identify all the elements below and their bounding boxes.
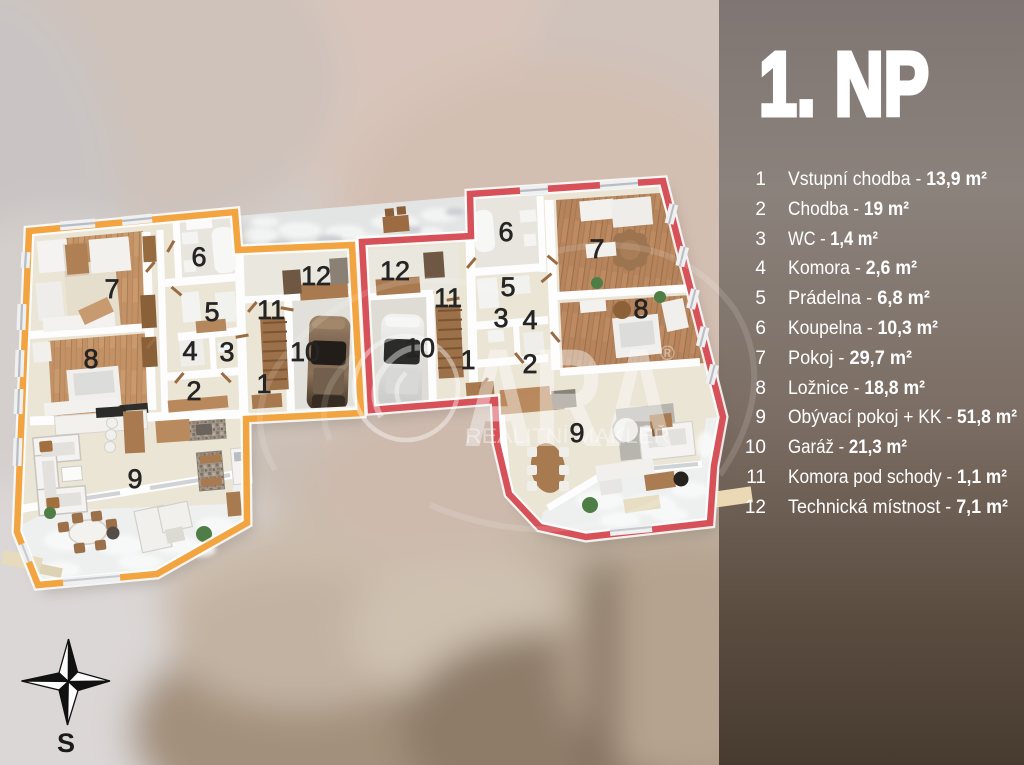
svg-text:S: S [57, 728, 75, 758]
svg-text:6: 6 [755, 318, 766, 339]
svg-text:8: 8 [633, 294, 648, 324]
svg-text:12: 12 [745, 497, 766, 518]
svg-text:10: 10 [290, 337, 320, 367]
svg-text:WC - 1,4 m²: WC - 1,4 m² [788, 229, 878, 250]
svg-text:5: 5 [755, 288, 766, 309]
svg-text:3: 3 [493, 303, 508, 333]
svg-text:Pokoj - 29,7 m²: Pokoj - 29,7 m² [788, 348, 912, 369]
svg-text:2: 2 [186, 376, 201, 406]
svg-text:Ložnice - 18,8 m²: Ložnice - 18,8 m² [788, 378, 925, 399]
svg-text:1: 1 [256, 369, 271, 399]
svg-text:6: 6 [498, 217, 513, 247]
svg-text:4: 4 [182, 336, 197, 366]
svg-text:2: 2 [522, 349, 537, 379]
svg-text:2: 2 [755, 199, 766, 220]
svg-text:9: 9 [755, 407, 766, 428]
svg-text:12: 12 [380, 256, 410, 286]
svg-text:12: 12 [301, 261, 331, 291]
svg-text:REALITNÍ MAKLÉŘ: REALITNÍ MAKLÉŘ [465, 425, 670, 448]
svg-text:Komora - 2,6 m²: Komora - 2,6 m² [788, 258, 917, 279]
svg-text:Vstupní chodba - 13,9 m²: Vstupní chodba - 13,9 m² [788, 169, 987, 190]
svg-text:Obývací pokoj + KK - 51,8 m²: Obývací pokoj + KK - 51,8 m² [788, 407, 1017, 428]
svg-text:1: 1 [755, 169, 766, 190]
svg-text:9: 9 [569, 418, 584, 448]
svg-text:6: 6 [191, 242, 206, 272]
svg-text:7: 7 [589, 234, 604, 264]
svg-text:11: 11 [434, 283, 462, 313]
svg-text:7: 7 [755, 348, 766, 369]
svg-text:7: 7 [104, 274, 119, 304]
svg-text:Prádelna - 6,8 m²: Prádelna - 6,8 m² [788, 288, 930, 309]
svg-text:Komora pod schody - 1,1 m²: Komora pod schody - 1,1 m² [788, 467, 1007, 488]
svg-text:5: 5 [500, 272, 515, 302]
svg-text:11: 11 [746, 467, 766, 488]
svg-text:3: 3 [219, 337, 234, 367]
svg-text:Chodba - 19 m²: Chodba - 19 m² [788, 199, 909, 220]
svg-text:9: 9 [127, 464, 142, 494]
svg-text:8: 8 [83, 344, 98, 374]
svg-text:10: 10 [745, 437, 766, 458]
svg-text:®: ® [660, 343, 675, 365]
svg-text:3: 3 [755, 229, 766, 250]
svg-text:1. NP: 1. NP [759, 35, 929, 135]
svg-text:10: 10 [405, 333, 435, 363]
svg-text:8: 8 [755, 378, 766, 399]
svg-text:11: 11 [257, 295, 285, 325]
svg-text:ARA: ARA [463, 319, 674, 476]
svg-text:Koupelna - 10,3 m²: Koupelna - 10,3 m² [788, 318, 938, 339]
svg-text:Garáž - 21,3 m²: Garáž - 21,3 m² [788, 437, 907, 458]
svg-text:4: 4 [522, 305, 537, 335]
svg-text:Technická místnost - 7,1 m²: Technická místnost - 7,1 m² [788, 497, 1008, 518]
svg-text:1: 1 [460, 345, 475, 375]
svg-text:5: 5 [204, 297, 219, 327]
svg-text:4: 4 [755, 258, 766, 279]
